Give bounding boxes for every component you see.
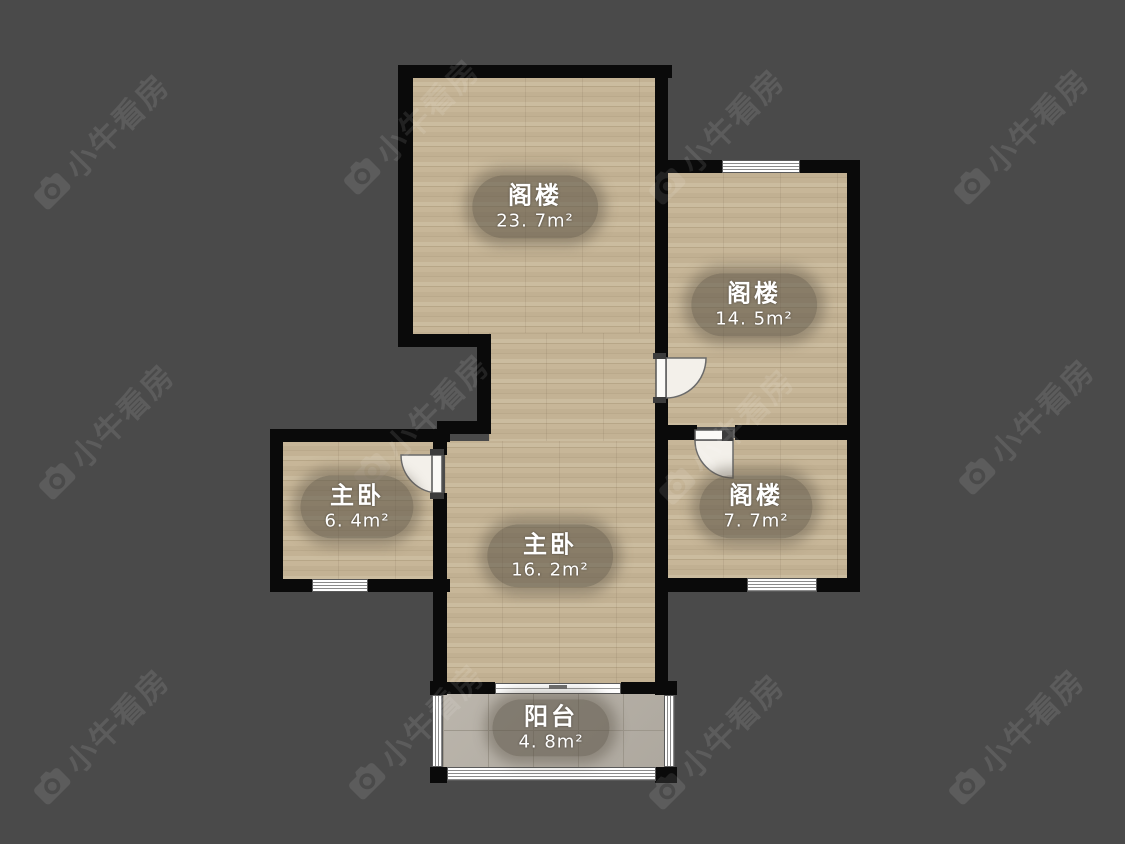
watermark-text: 小牛看房 <box>53 62 178 187</box>
room-name: 主卧 <box>324 482 389 510</box>
watermark: 小牛看房 <box>942 57 1098 213</box>
room-name: 阁楼 <box>715 280 793 308</box>
camera-icon <box>341 755 389 803</box>
room-label-attic-right-bottom: 阁楼 7. 7m² <box>699 475 812 538</box>
balcony-window-right <box>664 695 675 767</box>
room-area: 23. 7m² <box>496 210 574 232</box>
watermark: 小牛看房 <box>22 657 178 813</box>
wall <box>270 429 450 442</box>
wall <box>735 425 847 440</box>
balcony-post <box>655 767 677 783</box>
wall <box>477 334 491 434</box>
window-handle <box>549 685 567 689</box>
room-name: 阁楼 <box>723 482 788 510</box>
watermark: 小牛看房 <box>27 352 183 508</box>
room-label-attic-right-top: 阁楼 14. 5m² <box>691 273 817 336</box>
watermark: 小牛看房 <box>947 347 1103 503</box>
room-name: 主卧 <box>511 531 589 559</box>
room-label-balcony: 阳台 4. 8m² <box>492 699 609 756</box>
wall <box>433 493 447 689</box>
balcony-post <box>430 767 447 783</box>
wall <box>621 682 655 694</box>
door-swing-icon <box>691 423 743 481</box>
wall <box>655 398 668 689</box>
balcony-window-bottom <box>447 767 656 781</box>
watermark-text: 小牛看房 <box>973 57 1098 182</box>
camera-icon <box>336 150 384 198</box>
window <box>312 579 368 592</box>
room-name: 阳台 <box>518 703 583 731</box>
balcony-window-left <box>432 695 443 767</box>
floorplan-canvas: 小牛看房 小牛看房 小牛看房 小牛看房 小牛看房 小牛看房 小牛看房 小牛看房 … <box>0 0 1125 844</box>
watermark-text: 小牛看房 <box>668 662 793 787</box>
wall <box>655 65 668 358</box>
room-area: 6. 4m² <box>324 510 389 532</box>
room-area: 16. 2m² <box>511 559 589 581</box>
camera-icon <box>26 165 74 213</box>
wall <box>398 65 672 78</box>
camera-icon <box>946 160 994 208</box>
room-label-master-bedroom: 主卧 16. 2m² <box>487 524 613 587</box>
watermark-text: 小牛看房 <box>53 657 178 782</box>
room-name: 阁楼 <box>496 182 574 210</box>
camera-icon <box>951 450 999 498</box>
room-label-small-bedroom: 主卧 6. 4m² <box>300 475 413 538</box>
balcony-post <box>655 681 677 695</box>
room-area: 7. 7m² <box>723 510 788 532</box>
room-label-attic-large: 阁楼 23. 7m² <box>472 175 598 238</box>
wall <box>270 429 283 592</box>
wall <box>447 682 495 694</box>
room-area: 4. 8m² <box>518 731 583 753</box>
room-area: 14. 5m² <box>715 308 793 330</box>
wall <box>847 160 860 592</box>
watermark: 小牛看房 <box>937 657 1093 813</box>
door-swing-icon <box>653 352 709 404</box>
watermark-text: 小牛看房 <box>978 347 1103 472</box>
window <box>747 578 817 592</box>
watermark: 小牛看房 <box>22 62 178 218</box>
camera-icon <box>941 760 989 808</box>
camera-icon <box>26 760 74 808</box>
window <box>722 160 800 173</box>
watermark-text: 小牛看房 <box>968 657 1093 782</box>
floor-corridor <box>489 333 657 443</box>
watermark-text: 小牛看房 <box>58 352 183 477</box>
door-attic-right-top <box>653 352 709 408</box>
wall <box>398 65 413 347</box>
camera-icon <box>31 455 79 503</box>
balcony-sliding-window <box>495 683 621 694</box>
balcony-post <box>430 681 447 695</box>
